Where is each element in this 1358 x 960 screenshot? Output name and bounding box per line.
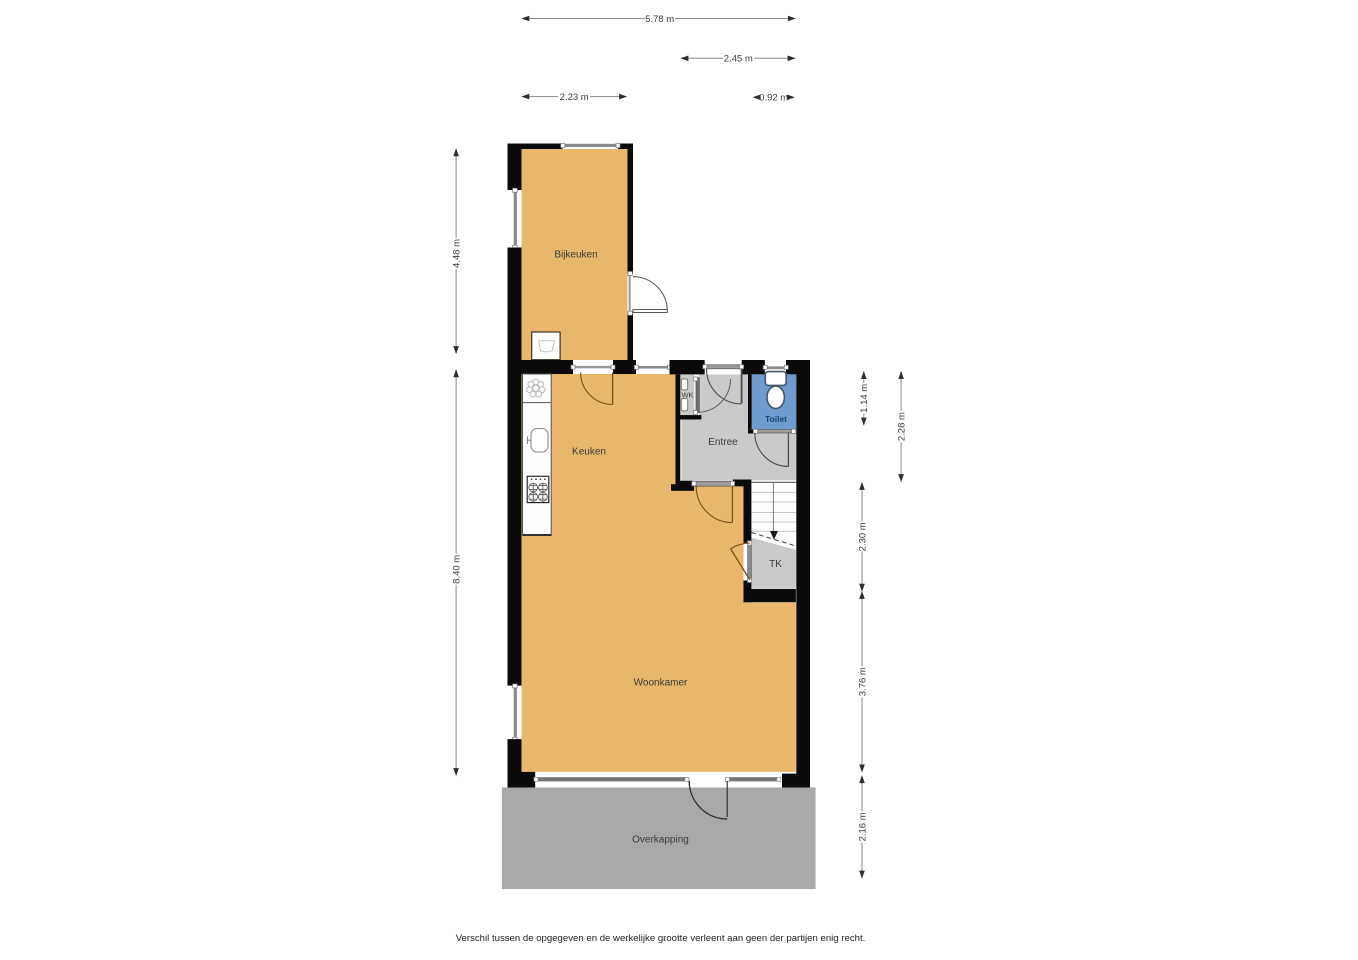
svg-text:Overkapping: Overkapping xyxy=(632,835,689,846)
svg-text:Verschil tussen de opgegeven e: Verschil tussen de opgegeven en de werke… xyxy=(456,933,866,944)
svg-text:2.28 m: 2.28 m xyxy=(897,412,908,441)
svg-text:Bijkeuken: Bijkeuken xyxy=(554,250,597,261)
svg-text:Keuken: Keuken xyxy=(572,447,606,458)
svg-text:2.45 m: 2.45 m xyxy=(724,54,753,65)
svg-text:8.40 m: 8.40 m xyxy=(452,555,463,584)
svg-text:Woonkamer: Woonkamer xyxy=(634,678,688,689)
svg-text:Entree: Entree xyxy=(708,437,738,448)
svg-text:2.23 m: 2.23 m xyxy=(560,92,589,103)
svg-text:2.16 m: 2.16 m xyxy=(857,812,868,841)
svg-text:5.78 m: 5.78 m xyxy=(645,14,674,25)
svg-text:Toilet: Toilet xyxy=(765,414,787,424)
svg-text:3.76 m: 3.76 m xyxy=(857,667,868,696)
svg-text:4.48 m: 4.48 m xyxy=(452,239,463,268)
svg-text:TK: TK xyxy=(769,559,782,570)
svg-text:1.14 m: 1.14 m xyxy=(859,384,870,413)
svg-text:2.30 m: 2.30 m xyxy=(857,522,868,551)
svg-text:0.92 m: 0.92 m xyxy=(759,93,788,104)
